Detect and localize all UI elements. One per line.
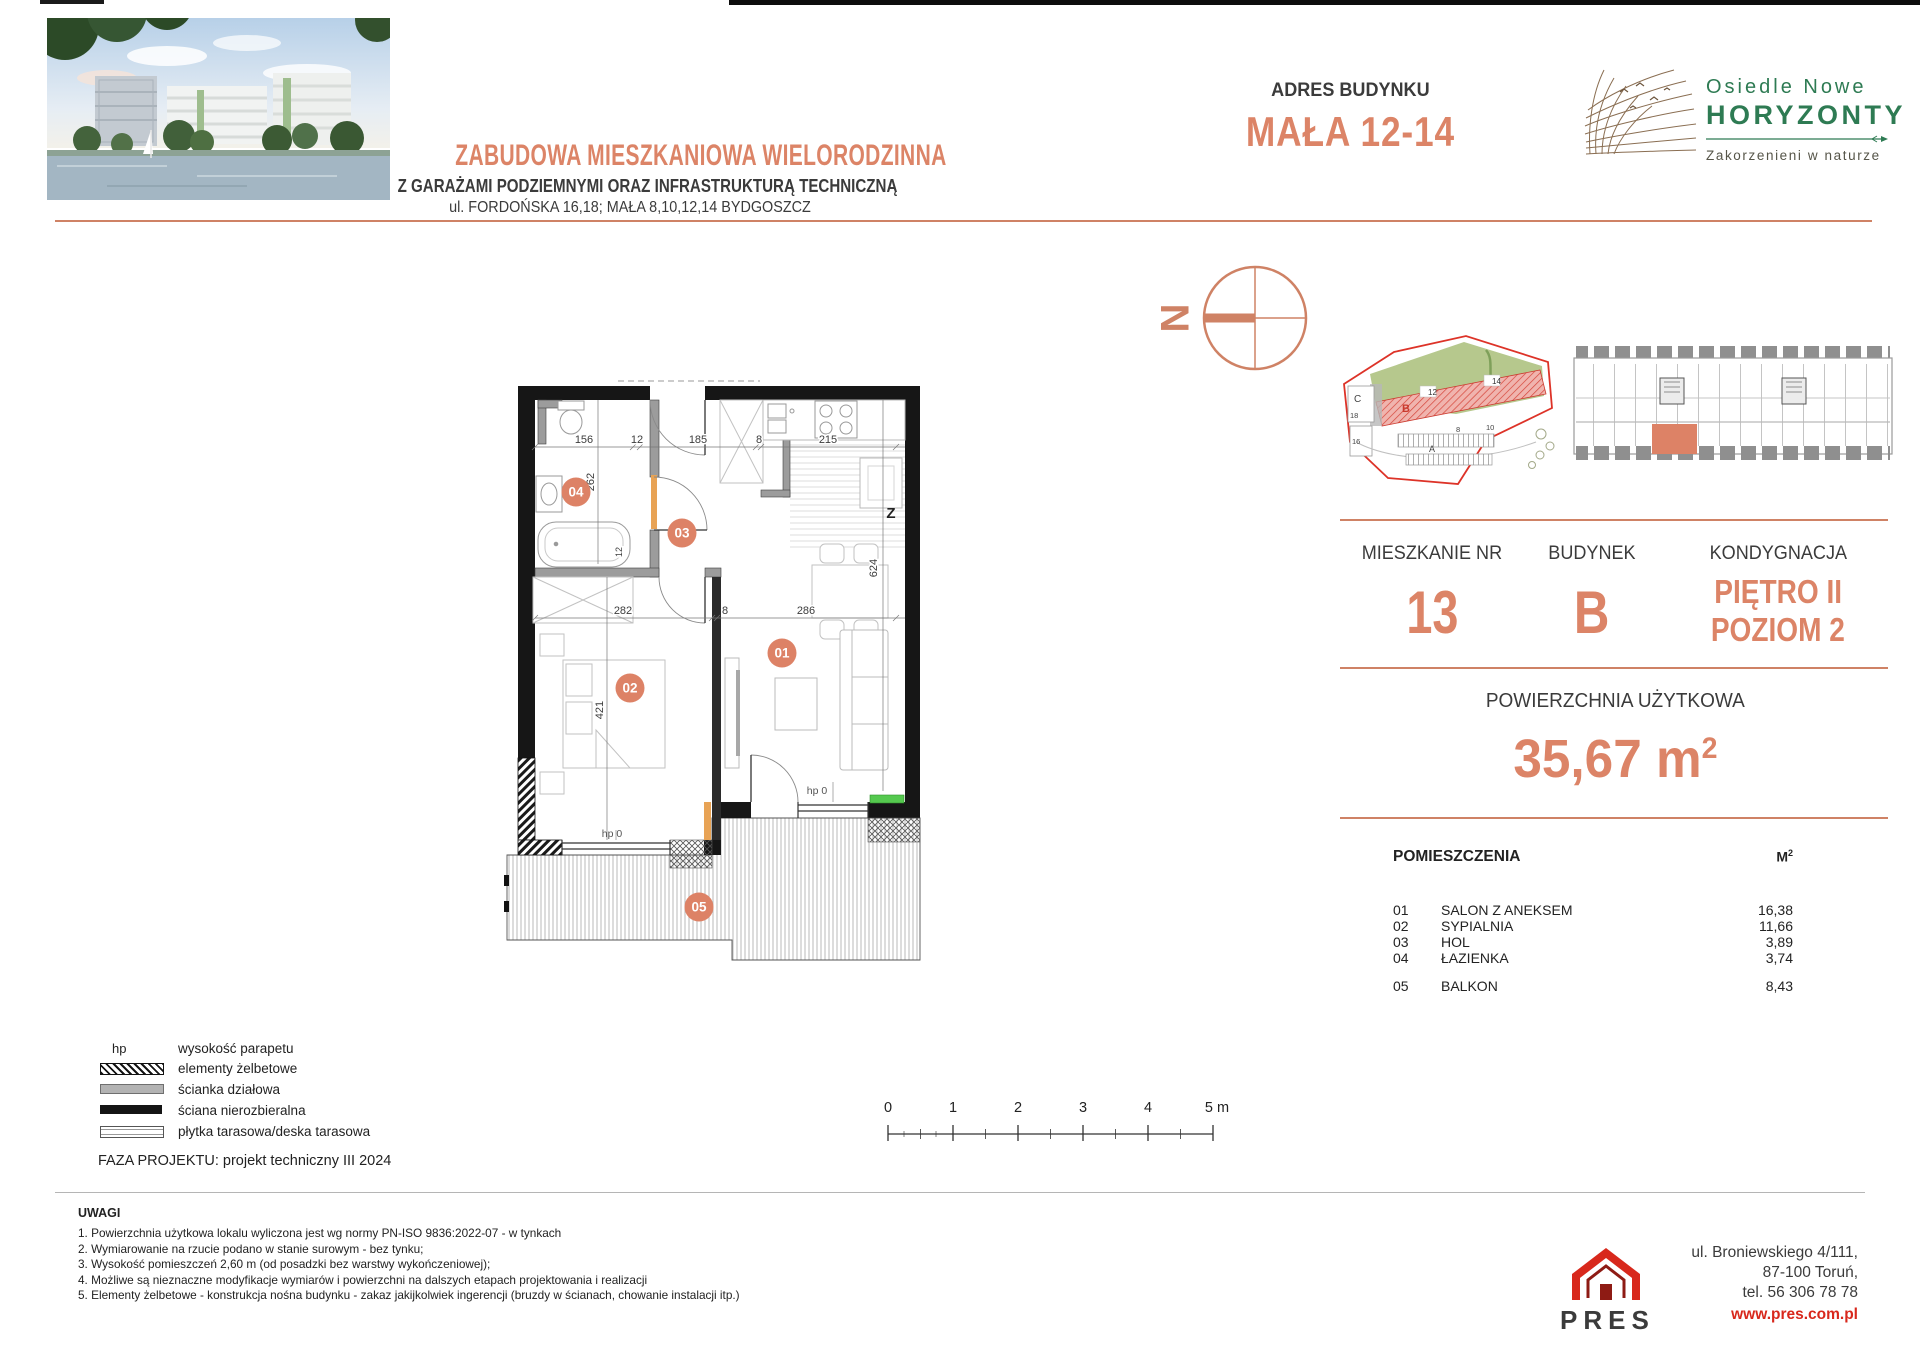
svg-text:03: 03 (674, 526, 690, 541)
logo-tagline: Zakorzenieni w naturze (1706, 148, 1902, 163)
info-divider-top (1340, 519, 1888, 521)
logo-divider (1706, 135, 1888, 143)
svg-text:01: 01 (774, 646, 790, 661)
svg-text:8: 8 (756, 434, 762, 446)
badge-room-05: 05 (685, 893, 714, 922)
usable-area-value: 35,67 m2 (1380, 728, 1850, 790)
development-photo (47, 18, 390, 200)
project-title-text: ZABUDOWA MIESZKANIOWA WIELORODZINNA (455, 139, 946, 173)
svg-text:282: 282 (614, 605, 632, 617)
insulation-block-2 (868, 818, 920, 842)
footer-address-line2: 87-100 Toruń, (1648, 1263, 1858, 1283)
svg-text:1: 1 (949, 1100, 957, 1116)
compass-north-letter: N (1154, 304, 1198, 333)
site-plan-map: B 12 14 C 18 16 A 8 10 (1336, 322, 1570, 494)
info-divider-bottom (1340, 817, 1888, 819)
toilet-bowl (560, 410, 582, 434)
badge-room-01: 01 (768, 639, 797, 668)
site-map-no-8: 8 (1456, 425, 1460, 434)
top-border-strip (729, 0, 1920, 5)
site-map-no-14: 14 (1492, 377, 1501, 386)
svg-text:286: 286 (797, 605, 815, 617)
notes-title: UWAGI (78, 1206, 740, 1220)
svg-text:156: 156 (575, 434, 593, 446)
building-address-label: ADRES BUDYNKU (1195, 80, 1505, 102)
storey-label: KON​DYGNACJA (1678, 543, 1878, 565)
north-compass: N (1140, 252, 1320, 387)
header-divider (55, 220, 1872, 222)
scale-bar-ticks (888, 1125, 1213, 1141)
development-photo-render (47, 18, 390, 200)
info-divider-mid (1340, 667, 1888, 669)
bedroom-window (562, 840, 670, 855)
legend-swatch-decking (100, 1126, 164, 1138)
reinforced-wall-segment (518, 758, 535, 840)
legend-swatch-reinforced (100, 1063, 164, 1075)
legend-swatch-solid-wall (100, 1105, 162, 1114)
site-map-no-10: 10 (1486, 423, 1494, 432)
rooms-table: POMIESZCZENIA M2 01 SALON Z ANEKSEM 16,3… (1393, 848, 1793, 866)
svg-text:5 m: 5 m (1205, 1100, 1229, 1116)
note-4: 4. Możliwe są nieznaczne modyfikacje wym… (78, 1273, 740, 1289)
project-title: ZABUDOWA MIESZKANIOWA WIELORODZINNA (350, 139, 910, 173)
storey-value-line1: PIĘTRO II (1678, 573, 1878, 611)
svg-text:185: 185 (689, 434, 707, 446)
note-5: 5. Elementy żelbetowe - konstrukcja nośn… (78, 1288, 740, 1304)
nightstand-2 (540, 772, 564, 794)
footer-address-block: ul. Broniewskiego 4/111, 87-100 Toruń, t… (1648, 1243, 1858, 1325)
svg-text:215: 215 (819, 434, 837, 446)
legend-swatch-partition (100, 1084, 164, 1094)
building-value: B (1497, 578, 1687, 647)
svg-text:0: 0 (884, 1100, 892, 1116)
svg-text:hp 0: hp 0 (602, 828, 623, 840)
building-floor-overview-map (1572, 340, 1894, 470)
logo-line-1: Osiedle Nowe (1706, 76, 1902, 99)
note-2: 2. Wymiarowanie na rzucie podano w stani… (78, 1242, 740, 1258)
developer-logo-text: Osiedle Nowe HORYZONTY Zakorzenieni w na… (1706, 76, 1902, 163)
site-map-building-a-label: A (1429, 444, 1435, 454)
usable-area-label: POWIERZCHNIA UŻYTKOWA (1380, 690, 1850, 713)
svg-text:hp 0: hp 0 (807, 785, 828, 797)
note-3: 3. Wysokość pomieszczeń 2,60 m (od posad… (78, 1257, 740, 1273)
bathroom-door-leaf (651, 475, 657, 529)
svg-text:12: 12 (631, 434, 643, 446)
top-border-strip-left (40, 0, 104, 4)
scale-bar-labels: 0 1 2 3 4 5 m (884, 1100, 1229, 1116)
svg-text:02: 02 (622, 681, 637, 696)
floor-plan: Z (500, 378, 930, 978)
svg-text:05: 05 (691, 900, 707, 915)
footer-address-line1: ul. Broniewskiego 4/111, (1648, 1243, 1858, 1263)
footer-divider (55, 1192, 1865, 1193)
site-map-no-18: 18 (1350, 411, 1358, 420)
svg-text:421: 421 (594, 701, 606, 719)
living-furniture (725, 630, 888, 770)
svg-text:2: 2 (1014, 1100, 1022, 1116)
developer-logo-icon (1580, 62, 1700, 162)
dining-set (812, 544, 888, 639)
bedroom-furniture (533, 577, 665, 794)
rooms-header-unit: M2 (1776, 848, 1793, 865)
rooms-table-header: POMIESZCZENIA M2 (1393, 848, 1793, 866)
svg-text:4: 4 (1144, 1100, 1152, 1116)
scale-bar: 0 1 2 3 4 5 m (876, 1096, 1256, 1151)
toilet-tank (558, 401, 584, 410)
bedroom-balcony-door-leaf (704, 802, 711, 840)
kitchen-sink (768, 404, 786, 418)
living-window (798, 802, 868, 818)
svg-text:04: 04 (568, 485, 584, 500)
building-address-value: MAŁA 12-14 (1195, 108, 1505, 156)
floor-plan-sheet: ZABUDOWA MIESZKANIOWA WIELORODZINNA Z GA… (0, 0, 1920, 1357)
green-threshold (870, 795, 904, 803)
rooms-header-name: POMIESZCZENIA (1393, 848, 1520, 865)
svg-text:3: 3 (1079, 1100, 1087, 1116)
project-subtitle-2: ul. FORDOŃSKA 16,18; MAŁA 8,10,12,14 BYD… (350, 199, 910, 217)
badge-room-02: 02 (616, 674, 645, 703)
site-map-building-b-label: B (1402, 403, 1410, 415)
sofa (840, 630, 888, 770)
svg-text:8: 8 (722, 605, 728, 617)
notes-block: UWAGI 1. Powierzchnia użytkowa lokalu wy… (78, 1206, 740, 1304)
badge-room-04: 04 (562, 478, 591, 507)
pres-brand-text: PRES (1560, 1305, 1655, 1336)
project-subtitle-1: Z GARAŻAMI PODZIEMNYMI ORAZ INFRASTRUKTU… (350, 176, 910, 197)
logo-line-2: HORYZONTY (1706, 100, 1902, 131)
kitchen-mark: Z (886, 505, 895, 522)
note-1: 1. Powierzchnia użytkowa lokalu wyliczon… (78, 1226, 740, 1242)
badge-room-03: 03 (668, 519, 697, 548)
pres-logo-icon (1566, 1246, 1646, 1304)
highlighted-unit (1652, 424, 1697, 454)
legend-hp-symbol: hp (112, 1041, 126, 1056)
area-superscript: 2 (1701, 732, 1717, 765)
reinforced-wall-segment-2 (518, 840, 562, 855)
nightstand (540, 634, 564, 656)
storey-value-line2: POZIOM 2 (1678, 611, 1878, 649)
svg-text:624: 624 (868, 559, 880, 577)
footer-website-link[interactable]: www.pres.com.pl (1648, 1305, 1858, 1325)
project-phase: FAZA PROJEKTU: projekt techniczny III 20… (98, 1153, 391, 1169)
footer-address-line3: tel. 56 306 78 78 (1648, 1283, 1858, 1303)
insulation-block-1 (670, 840, 712, 868)
svg-text:12: 12 (614, 547, 624, 557)
site-map-building-c-label: C (1354, 394, 1361, 405)
coffee-table (775, 678, 817, 730)
building-label: BUDYNEK (1497, 543, 1687, 565)
site-map-no-12: 12 (1428, 388, 1437, 397)
site-map-no-16: 16 (1352, 437, 1360, 446)
